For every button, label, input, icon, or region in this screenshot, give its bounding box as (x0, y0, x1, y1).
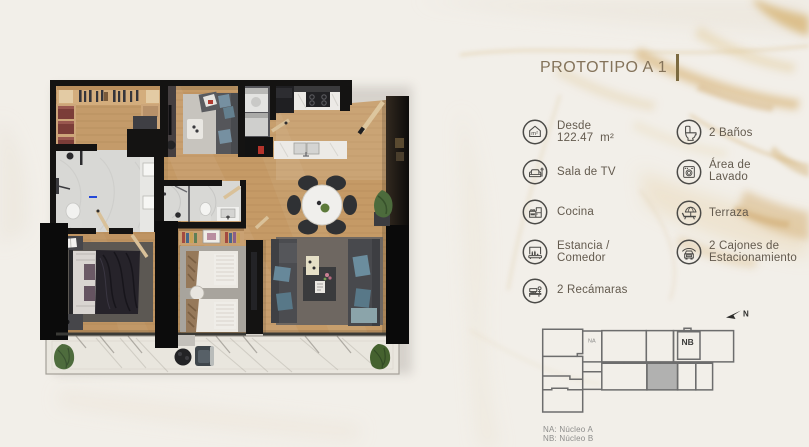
svg-text:NB: NB (682, 337, 694, 347)
svg-text:NA: NA (588, 339, 596, 345)
svg-text:m²: m² (531, 130, 538, 136)
svg-text:N: N (743, 310, 749, 319)
